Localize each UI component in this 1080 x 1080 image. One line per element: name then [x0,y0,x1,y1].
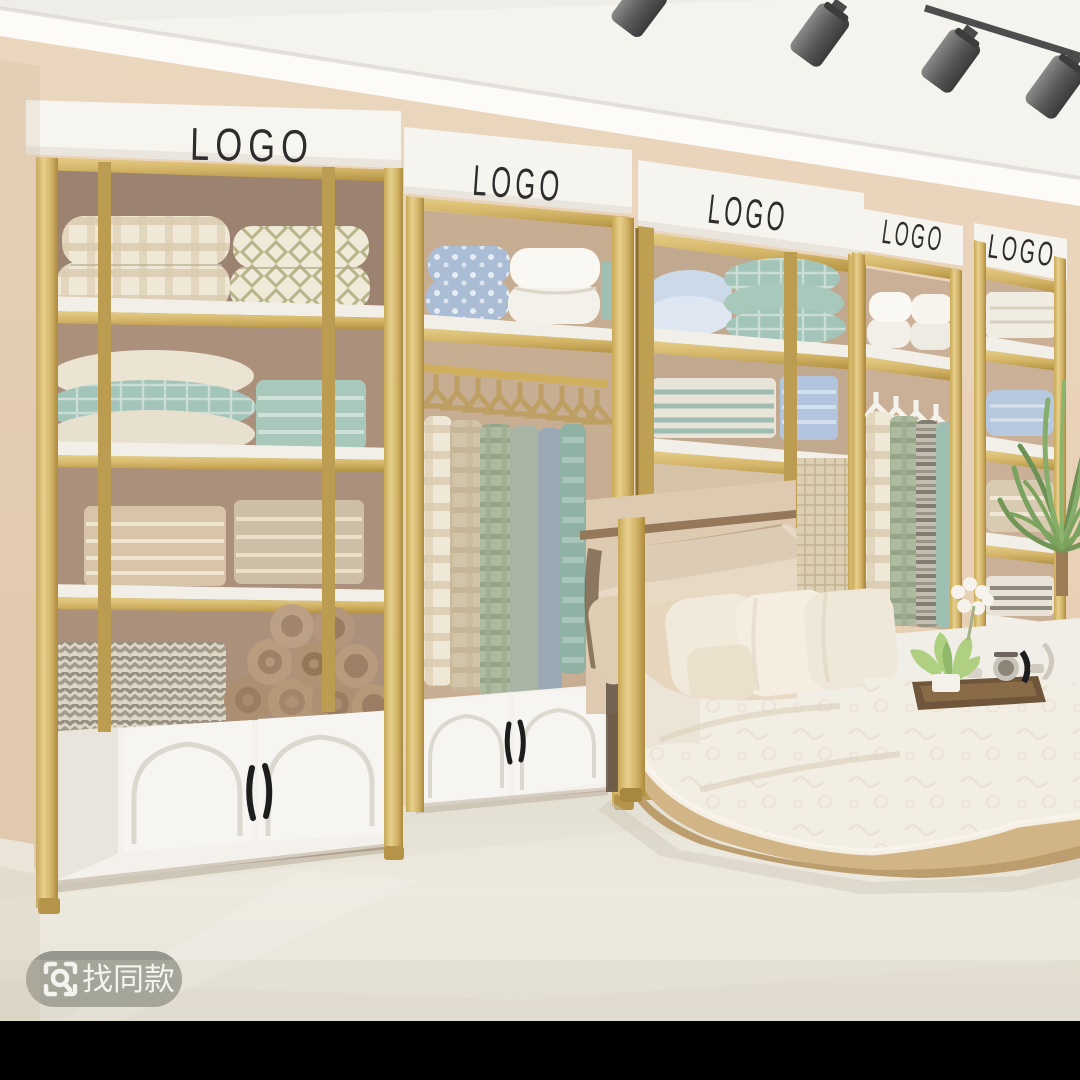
svg-text:LOGO: LOGO [706,186,791,241]
svg-text:LOGO: LOGO [471,157,565,211]
